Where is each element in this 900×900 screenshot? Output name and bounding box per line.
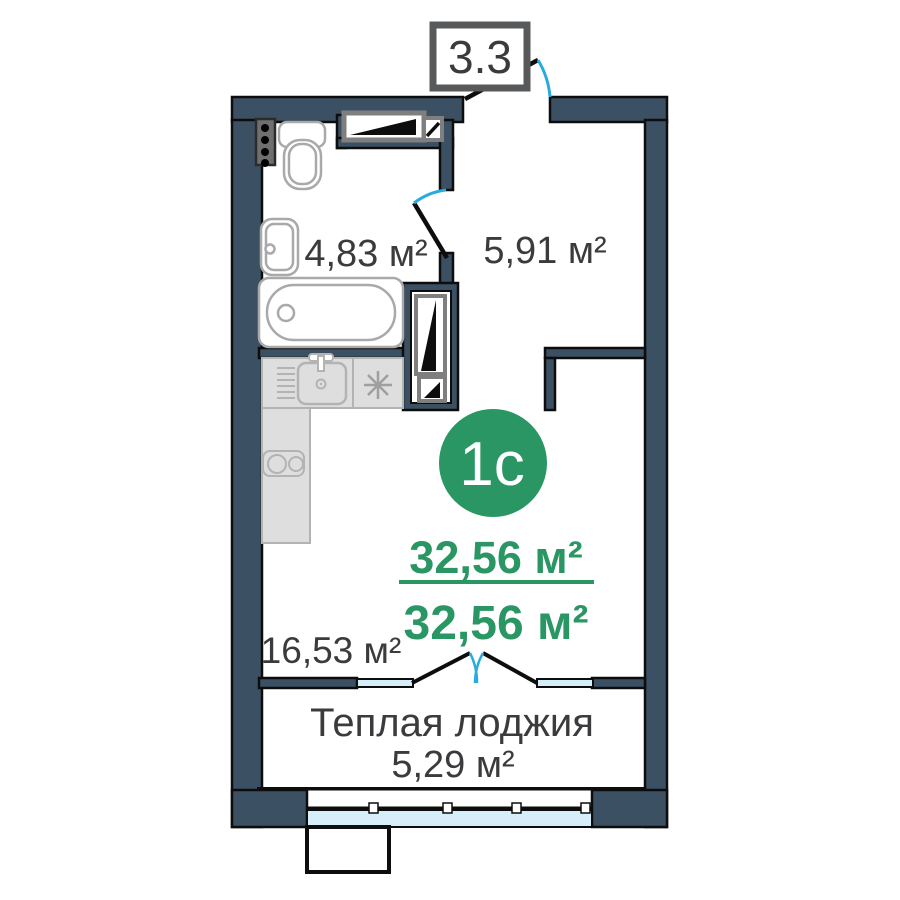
faucet-stem — [318, 356, 324, 371]
hob-asterisk-icon — [364, 371, 392, 399]
living-room-area-label: 16,53 м² — [261, 630, 402, 671]
area-summary: 1с 32,56 м² 32,56 м² — [399, 409, 594, 650]
sink-drain — [266, 245, 275, 254]
hallway-area-label: 5,91 м² — [483, 230, 606, 272]
floor-plan: 3.3 4,83 м² 5,91 м² 16,53 м² Теплая лодж… — [0, 0, 900, 900]
two-burner-hob — [263, 451, 304, 476]
balcony-door-leaf-left — [412, 653, 470, 683]
toilet-bowl-inner — [289, 144, 316, 184]
balcony-door-arc-right — [475, 653, 483, 683]
loggia-partition-right — [592, 678, 645, 688]
mullion-tick — [443, 803, 452, 813]
area-divider-line — [399, 580, 594, 584]
mullion-tick — [512, 803, 521, 813]
apartment-type-label: 1с — [459, 430, 524, 499]
riser-dot — [261, 148, 269, 156]
bathroom-door-arc — [414, 190, 446, 203]
partition-window-left — [357, 679, 413, 687]
partition-window-right — [537, 679, 593, 687]
loggia-corner-block-right — [592, 790, 667, 827]
left-wall — [232, 120, 262, 827]
balcony-door-leaf-right — [483, 653, 537, 683]
riser-dot — [261, 136, 269, 144]
kitchen-sink-drain-dot — [320, 383, 322, 385]
living-area-value: 32,56 м² — [404, 597, 589, 650]
riser-dot — [261, 124, 269, 132]
basement-ledge-box — [307, 827, 389, 872]
kitchen — [262, 354, 403, 543]
hallway-wall-horizontal — [545, 348, 645, 358]
mullion-tick — [581, 803, 590, 813]
total-area-value: 32,56 м² — [409, 532, 582, 583]
unit-label: 3.3 — [448, 31, 512, 83]
loggia-corner-block-left — [232, 790, 307, 827]
riser-dot — [261, 159, 269, 167]
top-wall-right — [550, 97, 667, 122]
mullion-tick — [369, 803, 378, 813]
loggia-area-label: 5,29 м² — [391, 744, 514, 786]
loggia-title-label: Теплая лоджия — [310, 701, 594, 745]
loggia-partition-left — [259, 678, 357, 688]
floor-plan-canvas: 3.3 4,83 м² 5,91 м² 16,53 м² Теплая лодж… — [0, 0, 900, 900]
loggia-inner-edge-line — [257, 787, 645, 791]
entrance-door-arc — [538, 60, 550, 97]
bathroom-area-label: 4,83 м² — [304, 233, 427, 275]
right-wall — [645, 120, 667, 827]
bathtub-drain — [278, 305, 294, 321]
hallway-wall-vertical — [545, 358, 555, 410]
